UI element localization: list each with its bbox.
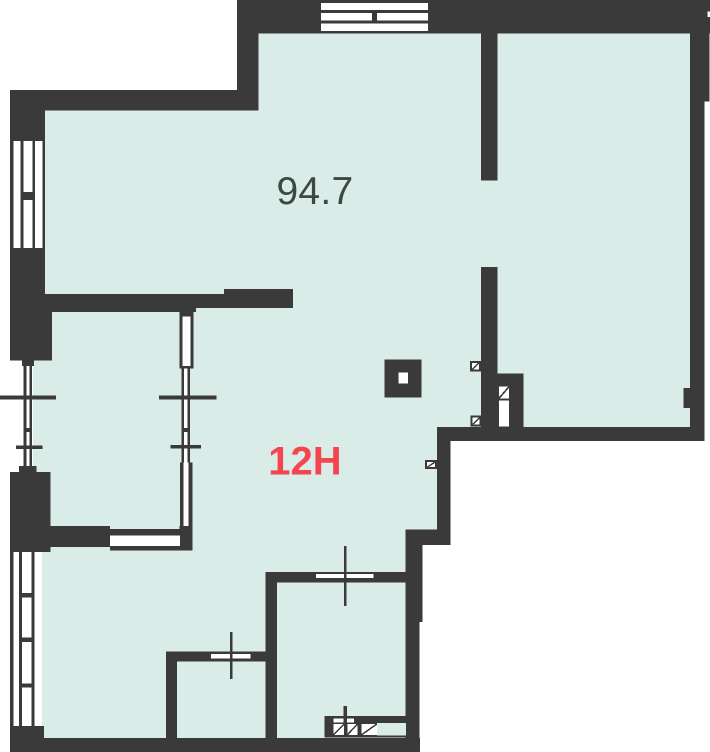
svg-text:94.7: 94.7 [276, 170, 353, 213]
svg-text:12H: 12H [268, 440, 341, 484]
